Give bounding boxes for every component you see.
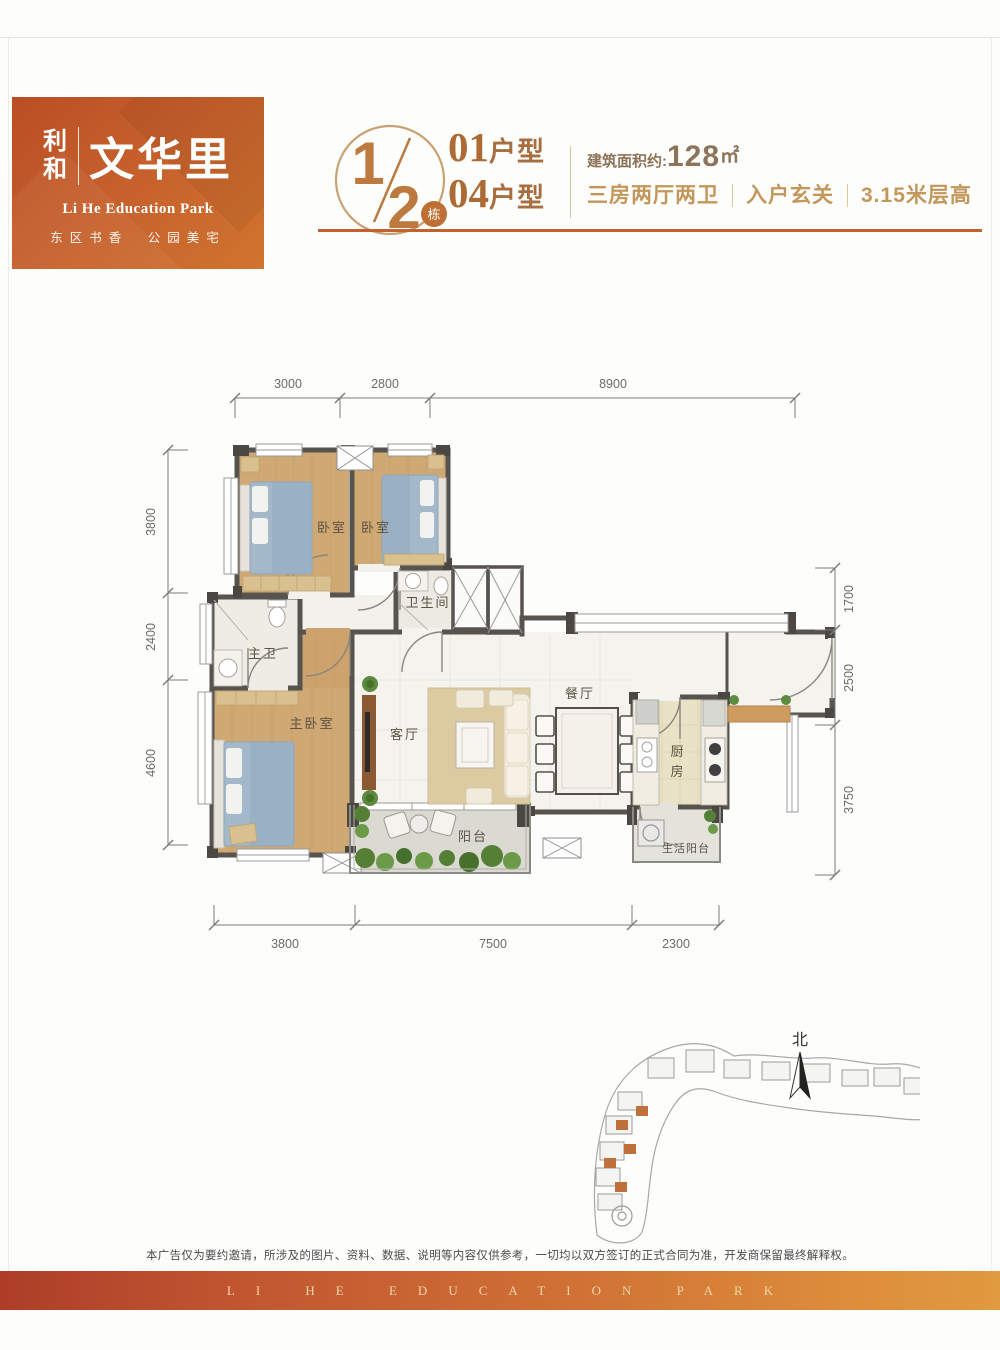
disclaimer-text: 本广告仅为要约邀请，所涉及的图片、资料、数据、说明等内容仅供参考，一切均以双方签… [0, 1247, 1000, 1263]
area-unit: ㎡ [720, 146, 739, 167]
feature-line: 三房两厅两卫入户玄关3.15米层高 [587, 179, 972, 209]
unit-type-04-suffix: 户型 [489, 183, 545, 213]
unit-types: 01户型 04户型 [448, 127, 545, 219]
feature-rooms: 三房两厅两卫 [587, 184, 719, 207]
brand-char-top: 利 [43, 128, 68, 156]
area-line: 建筑面积约:128㎡ [587, 140, 972, 174]
dim-bottom-2: 7500 [479, 937, 507, 951]
feature-foyer: 入户玄关 [732, 184, 834, 207]
balcony-label: 阳台 [458, 829, 488, 844]
dim-bottom-1: 3800 [271, 937, 299, 951]
dim-top-2: 2800 [371, 377, 399, 391]
master-bath-label: 主卫 [248, 646, 278, 661]
area-label: 建筑面积约: [587, 153, 667, 170]
north-label: 北 [792, 1031, 808, 1049]
kitchen-label-top: 厨 [670, 744, 685, 759]
dim-bottom-3: 2300 [662, 937, 690, 951]
badge-unit-label: 栋 [427, 207, 440, 222]
block-number-badge: 1 2 栋 [328, 122, 456, 246]
dim-right-3: 3750 [842, 786, 856, 814]
kitchen-label-bottom: 房 [670, 764, 685, 779]
service-balcony-label: 生活阳台 [662, 841, 710, 855]
unit-info: 建筑面积约:128㎡ 三房两厅两卫入户玄关3.15米层高 [587, 140, 972, 209]
bedroom2-label: 卧室 [361, 520, 391, 535]
dim-left-1: 3800 [144, 508, 158, 536]
title-vertical-divider [570, 146, 571, 218]
dining-label: 餐厅 [565, 686, 595, 701]
dim-top-3: 8900 [599, 377, 627, 391]
dim-top-1: 3000 [274, 377, 302, 391]
unit-type-01-suffix: 户型 [489, 137, 545, 167]
footer-banner: LI HE EDUCATION PARK [0, 1271, 1000, 1310]
brand-short-name: 利 和 [43, 128, 68, 183]
feature-height: 3.15米层高 [847, 184, 972, 207]
unit-type-04-num: 04 [448, 170, 489, 216]
living-label: 客厅 [390, 727, 420, 742]
dim-left-2: 2400 [144, 623, 158, 651]
brand-divider [78, 127, 79, 185]
area-value: 128 [667, 140, 720, 173]
bedroom1-label: 卧室 [317, 520, 347, 535]
master-bedroom-label: 主卧室 [289, 716, 334, 731]
siteplan: 北 [560, 1015, 920, 1245]
unit-type-01-num: 01 [448, 124, 489, 170]
badge-numerator: 1 [351, 130, 384, 197]
dim-right-2: 2500 [842, 664, 856, 692]
brand-subtitle-en: Li He Education Park [12, 201, 264, 218]
site-boundary [594, 1044, 920, 1243]
brand-name: 文华里 [89, 123, 233, 188]
page-top-border [0, 37, 1000, 38]
brand-row: 利 和 文华里 [12, 123, 264, 188]
unit-type-04: 04户型 [448, 173, 545, 214]
brand-logo-block: 利 和 文华里 Li He Education Park 东区书香 公园美宅 [12, 97, 264, 269]
dim-left-3: 4600 [144, 749, 158, 777]
unit-type-01: 01户型 [448, 127, 545, 168]
brand-char-bottom: 和 [43, 156, 68, 184]
brand-tagline: 东区书香 公园美宅 [12, 227, 264, 246]
dim-right-1: 1700 [842, 585, 856, 613]
bathroom-label: 卫生间 [405, 595, 450, 610]
floorplan: 卧室 卧室 卫生间 主卫 主卧室 客厅 餐厅 厨 房 阳台 生活阳台 [0, 350, 1000, 970]
title-accent-rule [318, 229, 982, 232]
